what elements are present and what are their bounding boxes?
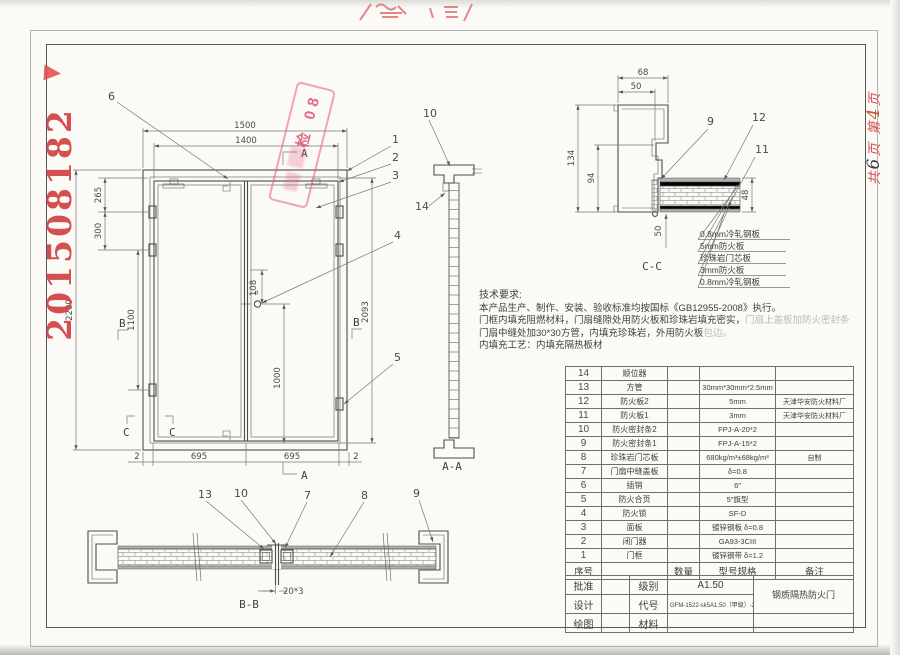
dim-1500: 1500 [234, 121, 256, 131]
dim-50: 50 [631, 82, 642, 92]
leader-9b: 9 [413, 487, 420, 500]
page-note-di: 第 [867, 119, 883, 135]
grade-value: A1.50 [668, 576, 754, 595]
dim-2093: 2093 [361, 301, 371, 323]
section-b-left: B [119, 317, 126, 330]
title-block-row: 绘图 材料 [566, 614, 854, 633]
table-row: 14顺位器 [566, 367, 854, 381]
layer-1-label: 0.8mm冷轧钢板 [700, 229, 760, 239]
dim-gap-left: 2 [134, 452, 139, 462]
dim-695-left: 695 [191, 452, 207, 462]
tech-line-3-faded: 包边。 [703, 328, 732, 339]
layer-4-label: 3mm防火板 [700, 265, 745, 275]
table-row: 7门扇中缝盖板δ=0.8 [566, 465, 854, 479]
table-row: 8珍珠岩门芯板680kg/m³±68kg/m³自制 [566, 451, 854, 465]
section-bb-view: 20*3 B-B 13 10 7 8 9 [88, 487, 448, 611]
dim-20x3: 20*3 [283, 587, 303, 597]
leader-6: 6 [108, 90, 115, 103]
leader-14: 14 [415, 200, 429, 213]
dim-48: 48 [741, 190, 751, 201]
leader-11: 11 [755, 143, 769, 156]
stamp-ink-blob-icon [283, 171, 301, 192]
section-b-right: B [353, 316, 360, 329]
material-value [668, 614, 754, 633]
table-row: 1门框镀锌钢带 δ=1.2 [566, 549, 854, 563]
table-row: 11防火板13mm天津华安防火材料厂 [566, 409, 854, 423]
table-row: 10防火密封条2FPJ-A-20*2 [566, 423, 854, 437]
table-row: 12防火板25mm天津华安防火材料厂 [566, 395, 854, 409]
grade-label: 级别 [630, 576, 668, 595]
stamp-ink-blob-icon [287, 145, 307, 168]
leader-13: 13 [198, 488, 212, 501]
serial-number-stamp: 201508182 [40, 100, 76, 348]
approve-label: 批准 [566, 576, 602, 595]
table-row: 6插销6″ [566, 479, 854, 493]
hinge-marks [149, 206, 343, 410]
elevation-leaders: 6 1 2 3 4 5 10 14 [108, 90, 450, 404]
tech-line-1: 本产品生产、制作、安装、验收标准均按国标《GB12955-2008》执行。 [479, 303, 879, 316]
table-row: 4防火锁SF-D [566, 507, 854, 521]
stamp-fragment-icons [360, 4, 472, 21]
dim-68: 68 [638, 68, 649, 78]
leader-9c: 9 [707, 115, 714, 128]
layer-5-label: 0.8mm冷轧钢板 [700, 277, 760, 287]
design-label: 设计 [566, 595, 602, 614]
draft-label: 绘图 [566, 614, 602, 633]
tech-title: 技术要求: [479, 290, 879, 303]
leader-2: 2 [392, 151, 399, 164]
dim-50b: 50 [654, 226, 664, 237]
leader-10b: 10 [234, 487, 248, 500]
dim-265: 265 [94, 187, 104, 203]
tech-line-2-main: 门框内填充阻燃材料，门扇缝隙处用防火板和珍珠岩填充密实， [479, 315, 745, 326]
detail-cc-view: 68 50 134 94 48 50 9 12 11 [567, 68, 790, 288]
table-row: 9防火密封条1FPJ-A-15*2 [566, 437, 854, 451]
leader-1: 1 [392, 133, 399, 146]
elevation-dimensions: 1500 1400 2200 265 300 1100 2093 108 [65, 121, 376, 466]
page-note-ye1: 页 [867, 141, 883, 157]
section-c-right: C [169, 426, 176, 439]
tech-line-3: 门扇中缝处加30*30方管，内填充珍珠岩，外用防火板包边。 [479, 328, 879, 341]
dim-108: 108 [249, 280, 259, 296]
table-row: 2闭门器GA93-3CIII [566, 535, 854, 549]
code-value: GFM-1522-sk5A1.50（甲级）-2 [668, 595, 754, 614]
product-name: 钢质隔热防火门 [754, 576, 854, 614]
detail-cc-label: C-C [642, 260, 662, 273]
page-count-note: 共6页 第4页 [863, 53, 885, 223]
dim-300: 300 [94, 223, 104, 239]
leader-4: 4 [394, 229, 401, 242]
leader-8: 8 [361, 489, 368, 502]
layer-3-label: 珍珠岩门芯板 [700, 253, 752, 263]
leader-7: 7 [304, 489, 311, 502]
dim-94: 94 [587, 173, 597, 184]
tech-line-3-main: 门扇中缝处加30*30方管，内填充珍珠岩，外用防火板 [479, 328, 703, 339]
material-label: 材料 [630, 614, 668, 633]
dim-134: 134 [567, 150, 577, 166]
section-c-left: C [123, 426, 130, 439]
page-note-num: 4 [864, 107, 884, 120]
layer-2-label: 5mm防火板 [700, 241, 745, 251]
flush-bolt-marks [223, 182, 230, 440]
page-note-total: 6 [864, 157, 884, 170]
table-row: 5防火合页5″旗型 [566, 493, 854, 507]
parts-table: 14顺位器 13方管30mm*30mm*2.5mm 12防火板25mm天津华安防… [565, 366, 854, 580]
leader-3: 3 [392, 169, 399, 182]
tech-line-4: 内填充工艺：内填充隔热板材 [479, 340, 879, 353]
dim-1000: 1000 [273, 367, 283, 389]
title-block-row: 批准 级别 A1.50 钢质隔热防火门 [566, 576, 854, 595]
leader-10: 10 [423, 107, 437, 120]
page-note-ye2: 页 [867, 91, 883, 107]
title-block: 批准 级别 A1.50 钢质隔热防火门 设计 代号 GFM-1522-sk5A1… [565, 575, 854, 633]
dim-695-right: 695 [284, 452, 300, 462]
dim-gap-right: 2 [353, 452, 358, 462]
leader-5: 5 [394, 351, 401, 364]
red-arrow-mark-icon [43, 64, 61, 81]
section-aa-label: A-A [442, 460, 462, 473]
table-row: 13方管30mm*30mm*2.5mm [566, 381, 854, 395]
leader-12: 12 [752, 111, 766, 124]
section-markers: A A B B C C [118, 147, 362, 482]
page-note-gong: 共 [867, 169, 883, 185]
inspection-stamp-text: 检 08 [291, 90, 325, 149]
section-aa-view: A-A [434, 165, 482, 473]
table-row: 3面板镀锌钢板 δ=0.8 [566, 521, 854, 535]
section-a-bottom: A [301, 469, 308, 482]
tech-line-2-faded: 门扇上盖板加防火密封条 [745, 315, 850, 326]
tech-requirements: 技术要求: 本产品生产、制作、安装、验收标准均按国标《GB12955-2008》… [479, 290, 879, 353]
dim-1400: 1400 [235, 136, 257, 146]
dim-1100: 1100 [127, 309, 137, 331]
drawing-sheet: 1500 1400 2200 265 300 1100 2093 108 [0, 0, 900, 655]
tech-line-2: 门框内填充阻燃材料，门扇缝隙处用防火板和珍珠岩填充密实，门扇上盖板加防火密封条 [479, 315, 879, 328]
section-bb-label: B-B [239, 598, 259, 611]
code-label: 代号 [630, 595, 668, 614]
elevation-view: 1500 1400 2200 265 300 1100 2093 108 [65, 90, 450, 482]
